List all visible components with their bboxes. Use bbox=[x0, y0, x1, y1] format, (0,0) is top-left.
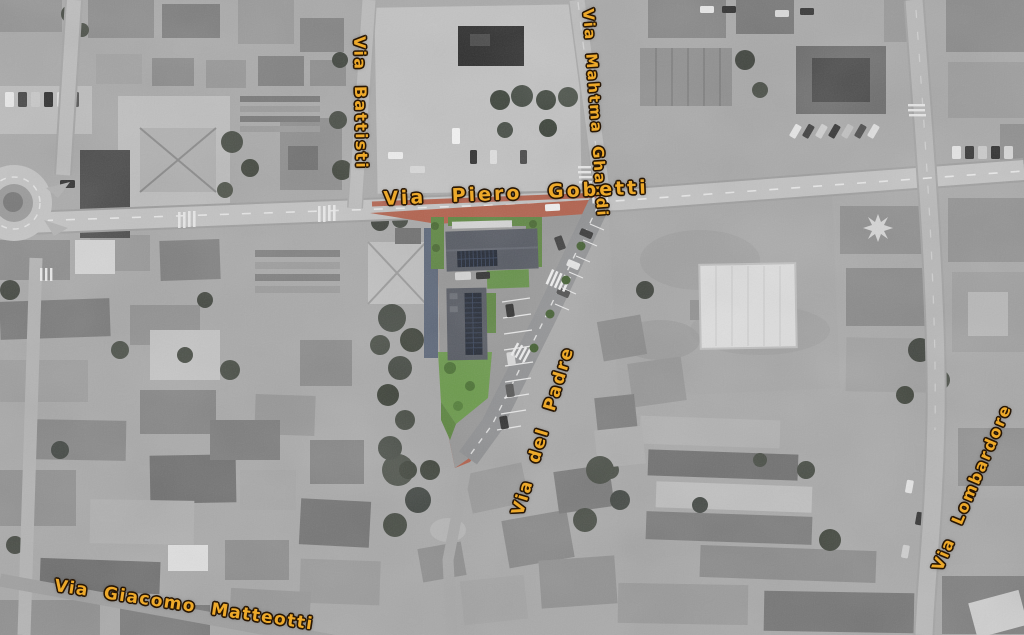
aerial-map: Via Battisti Via Mahtma Ghandi Via Piero… bbox=[0, 0, 1024, 635]
aerial-photo-base bbox=[0, 0, 1024, 635]
photo-grain bbox=[0, 0, 1024, 635]
